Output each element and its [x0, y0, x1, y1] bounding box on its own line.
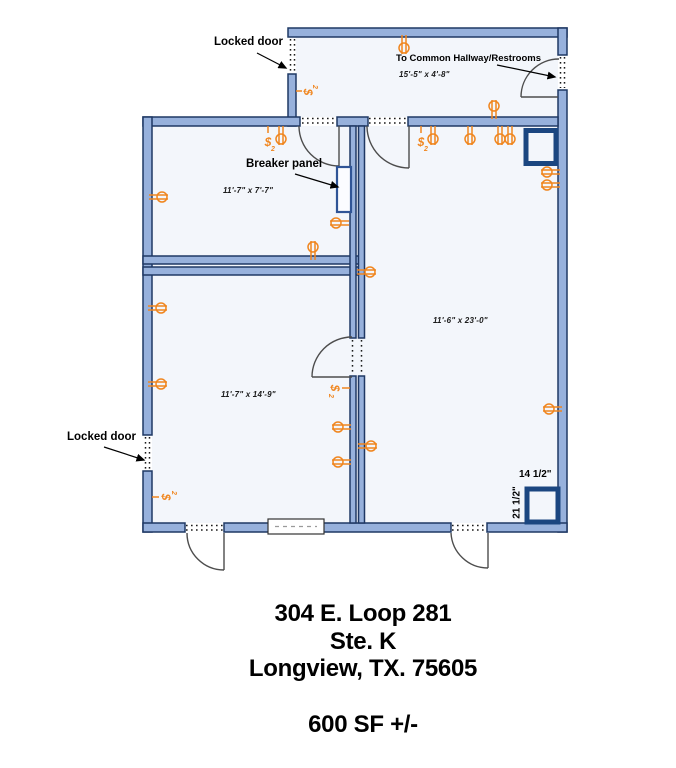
address-block: 304 E. Loop 281 Ste. K Longview, TX. 756… [249, 600, 477, 683]
locked-door-left-arrow [104, 447, 144, 460]
bottom-right-door-opening [452, 526, 486, 531]
breaker-panel-label: Breaker panel [246, 158, 322, 170]
address-line2: Ste. K [249, 628, 477, 656]
floor-plan-drawing: $ 2 $ 2 $ 2 $ 2 $ 2 [0, 0, 676, 580]
bottom-left-door-opening [186, 526, 223, 531]
hvac-chase-top [526, 131, 556, 164]
svg-text:2: 2 [423, 146, 428, 153]
locked-door-top-arrow [257, 53, 286, 68]
main-room-door-opening [369, 119, 407, 124]
office-top-left-door-opening [302, 119, 336, 124]
hallway-dimensions: 15'-5" x 4'-8" [399, 70, 450, 79]
office-top-left-dimensions: 11'-7" x 7'-7" [223, 186, 273, 195]
svg-text:2: 2 [311, 84, 318, 89]
breaker-panel-box [337, 167, 351, 212]
address-line1: 304 E. Loop 281 [249, 600, 477, 628]
locked-door-left-opening [146, 437, 150, 470]
locked-door-top-label: Locked door [214, 36, 283, 48]
area-label: 600 SF +/- [308, 711, 418, 739]
locked-door-left-label: Locked door [67, 431, 136, 443]
common-hallway-door-opening [561, 57, 565, 88]
locked-door-top-opening [291, 39, 295, 73]
svg-text:$: $ [328, 384, 342, 392]
chase-depth-label: 21 1/2" [512, 481, 523, 525]
column-chase-bottom [527, 489, 558, 522]
address-line3: Longview, TX. 75605 [249, 655, 477, 683]
main-room-dimensions: 11'-6" x 23'-0" [433, 316, 488, 325]
common-hallway-label: To Common Hallway/Restrooms [396, 53, 541, 64]
office-bottom-left-dimensions: 11'-7" x 14'-9" [221, 390, 276, 399]
svg-text:2: 2 [327, 393, 334, 398]
svg-text:2: 2 [170, 490, 177, 495]
chase-width-label: 14 1/2" [519, 469, 552, 480]
svg-text:2: 2 [270, 146, 275, 153]
window [268, 519, 324, 534]
floor-plan-page: $ 2 $ 2 $ 2 $ 2 $ 2 [0, 0, 676, 768]
